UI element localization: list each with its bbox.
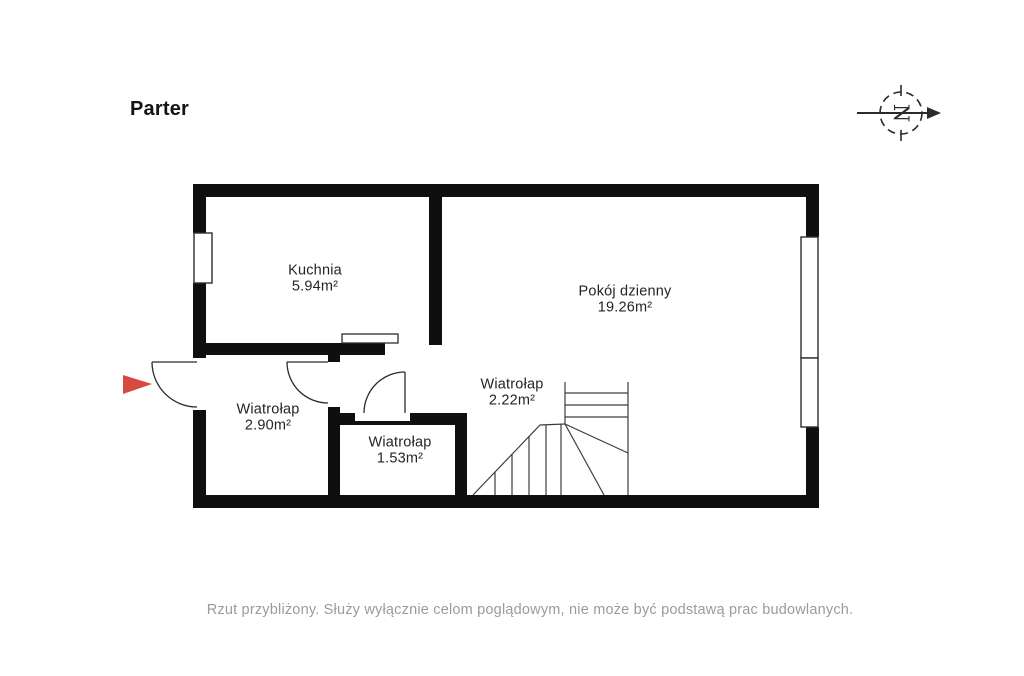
doorway-inset-small-vestibule	[355, 413, 410, 421]
compass-north-letter: N	[889, 104, 913, 122]
room-name: Pokój dzienny	[579, 285, 672, 301]
disclaimer-text: Rzut przybliżony. Służy wyłącznie celom …	[36, 602, 1024, 618]
room-label-wiatrolap-maly: Wiatrołap 1.53m²	[368, 436, 431, 467]
door-small-vestibule	[364, 372, 405, 413]
room-label-wiatrolap-hall: Wiatrołap 2.22m²	[480, 378, 543, 409]
wall-outer-left-upper	[193, 184, 206, 233]
room-label-wiatrolap-duzy: Wiatrołap 2.90m²	[236, 403, 299, 434]
wall-small-vestibule-right	[455, 413, 467, 495]
wall-outer-bottom	[193, 495, 819, 508]
room-area: 2.22m²	[480, 393, 543, 409]
room-label-kuchnia: Kuchnia 5.94m²	[288, 264, 342, 295]
window-right-wall-upper	[801, 237, 818, 358]
window-right-wall-lower	[801, 358, 818, 427]
room-name: Wiatrołap	[236, 403, 299, 419]
room-area: 5.94m²	[288, 279, 342, 295]
room-label-pokoj-dzienny: Pokój dzienny 19.26m²	[579, 285, 672, 316]
window-left-wall	[194, 233, 212, 283]
door-vestibule	[287, 362, 328, 403]
room-area: 19.26m²	[579, 300, 672, 316]
wall-vestibule-divider-upper	[328, 343, 340, 362]
walls	[193, 184, 819, 508]
room-area: 1.53m²	[368, 451, 431, 467]
wall-outer-right-lower	[806, 427, 819, 508]
stair-stringer-diagonal	[473, 424, 565, 495]
room-name: Kuchnia	[288, 264, 342, 280]
room-area: 2.90m²	[236, 418, 299, 434]
room-name: Wiatrołap	[368, 436, 431, 452]
wall-outer-left-lower	[193, 410, 206, 508]
door-small-vestibule-arc	[364, 372, 405, 413]
kitchen-counter	[342, 334, 398, 343]
wall-outer-top	[193, 184, 819, 197]
floorplan-drawing: N	[0, 0, 1024, 676]
stair-winder-line	[565, 424, 628, 453]
door-entrance	[152, 362, 197, 407]
door-entrance-arc	[152, 362, 197, 407]
wall-below-kitchen	[198, 343, 385, 355]
compass: N	[857, 85, 941, 141]
room-name: Wiatrołap	[480, 378, 543, 394]
entrance-arrow-icon	[123, 375, 152, 394]
stair-winder-line	[565, 424, 604, 495]
compass-arrowhead-icon	[927, 107, 941, 119]
wall-outer-right-upper	[806, 184, 819, 237]
floorplan-page: Parter N	[0, 0, 1024, 676]
wall-kitchen-livingroom	[429, 197, 442, 345]
door-vestibule-arc	[287, 362, 328, 403]
